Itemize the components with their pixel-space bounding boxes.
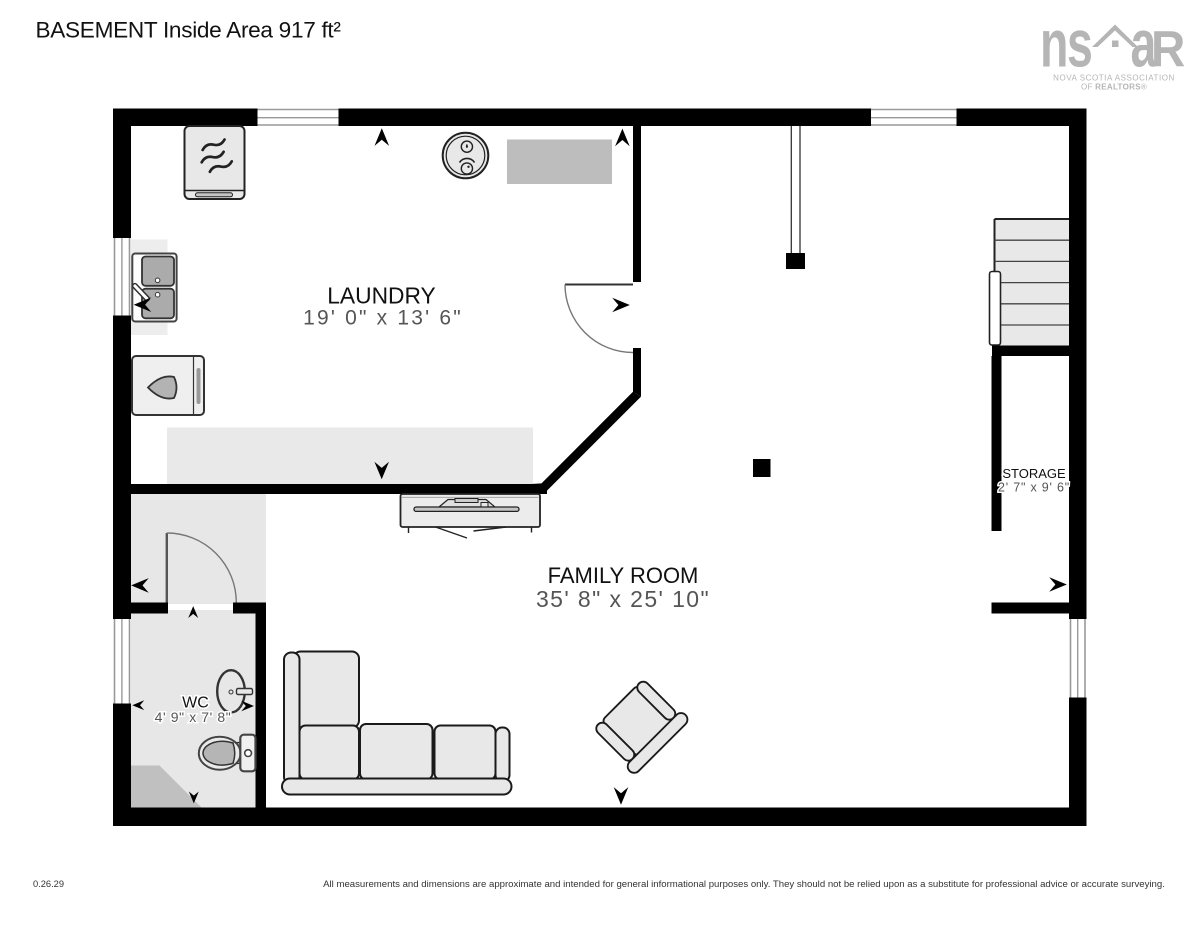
svg-text:ns: ns xyxy=(1040,7,1091,81)
svg-text:LAUNDRY: LAUNDRY xyxy=(327,283,436,309)
svg-text:STORAGE: STORAGE xyxy=(1002,466,1066,481)
svg-text:35' 8" x 25' 10": 35' 8" x 25' 10" xyxy=(536,586,710,612)
svg-text:0.26.29: 0.26.29 xyxy=(33,879,64,889)
svg-text:All measurements and dimension: All measurements and dimensions are appr… xyxy=(323,879,1165,890)
svg-text:BASEMENT Inside Area 917 ft²: BASEMENT Inside Area 917 ft² xyxy=(36,18,342,43)
svg-text:NOVA SCOTIA ASSOCIATION: NOVA SCOTIA ASSOCIATION xyxy=(1053,74,1175,83)
svg-text:R: R xyxy=(1151,21,1185,78)
svg-text:OF REALTORS®: OF REALTORS® xyxy=(1081,83,1147,92)
svg-text:FAMILY ROOM: FAMILY ROOM xyxy=(548,563,699,588)
svg-text:2' 7" x 9' 6": 2' 7" x 9' 6" xyxy=(998,481,1070,495)
svg-text:4' 9" x 7' 8": 4' 9" x 7' 8" xyxy=(155,709,232,725)
svg-text:19' 0" x 13' 6": 19' 0" x 13' 6" xyxy=(303,307,463,330)
